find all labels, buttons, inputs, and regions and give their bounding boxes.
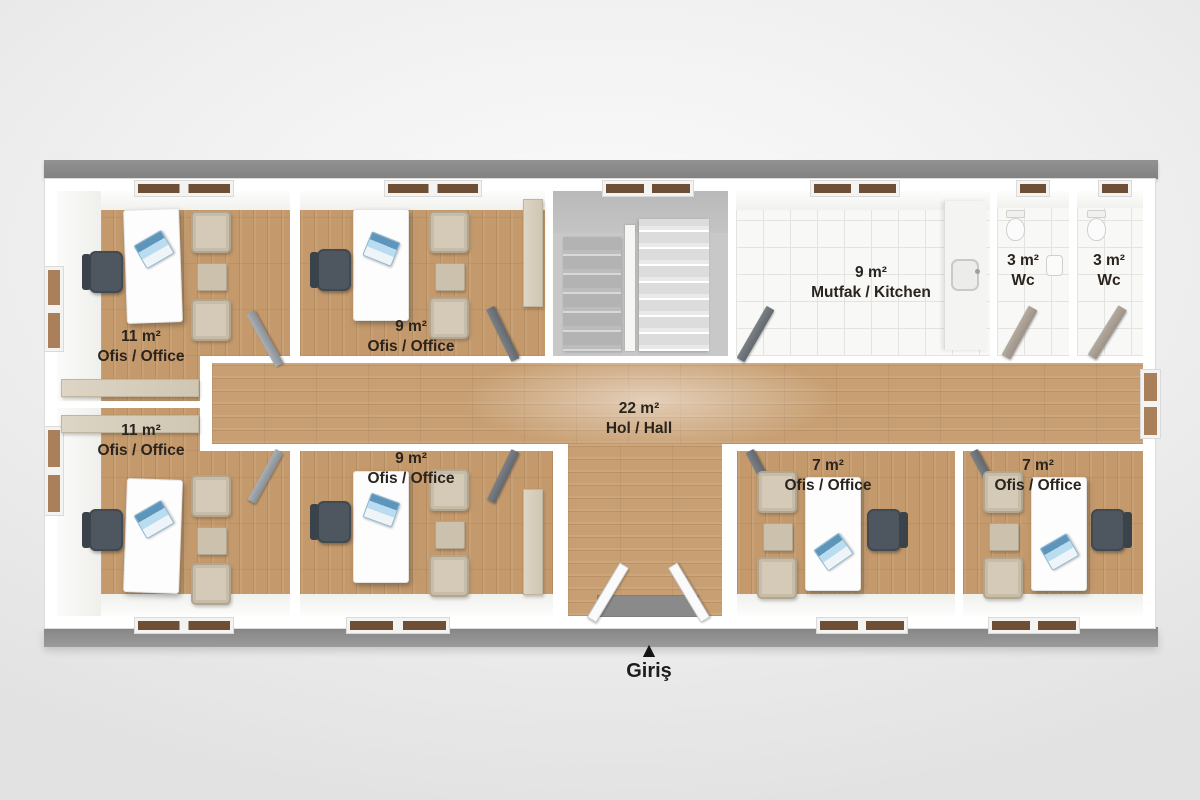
window [45,267,63,351]
guest-chair [191,211,231,253]
hall-floor [212,363,1143,444]
building-top-frame [44,160,1158,179]
room-label-office-bottom-right-1: 7 m² Ofis / Office [785,456,872,497]
room-name: Ofis / Office [785,476,872,496]
window [1099,181,1131,196]
cabinet [523,489,543,595]
guest-chair [983,557,1023,599]
room-area: 11 m² [98,327,185,347]
building-outline: 11 m² Ofis / Office 9 m² Ofis / Office 9… [45,179,1155,628]
room-name: Ofis / Office [98,347,185,367]
window [817,618,907,633]
wc-right-toilet-tank [1087,210,1106,218]
entrance-arrow-icon: ▲ [639,640,660,661]
hall-floor-highlight [212,363,1143,444]
wc-left-toilet-tank [1006,210,1025,218]
room-name: Mutfak / Kitchen [811,283,931,303]
room-area: 3 m² [1093,251,1125,271]
room-label-wc-right: 3 m² Wc [1093,251,1125,292]
room-area: 22 m² [606,399,672,419]
guest-chair [757,557,797,599]
room-area: 9 m² [811,263,931,283]
room-area: 7 m² [785,456,872,476]
room-name: Ofis / Office [98,441,185,461]
desk [123,208,183,324]
guest-chair [191,299,231,341]
office-chair [89,251,123,293]
window [347,618,449,633]
wallface [300,594,553,616]
guest-chair [191,563,231,605]
office-chair [89,509,123,551]
wc-left-toilet [1006,218,1025,241]
room-label-office-bottom-middle: 9 m² Ofis / Office [368,449,455,490]
entrance-mat [597,595,699,617]
room-name: Hol / Hall [606,419,672,439]
window [135,618,233,633]
coffee-table [197,263,227,291]
coffee-table [763,523,793,551]
window [811,181,899,196]
stair-flight-down [639,219,709,351]
cabinet [61,379,199,397]
room-label-office-top-left: 11 m² Ofis / Office [98,327,185,368]
room-area: 11 m² [98,421,185,441]
coffee-table [197,527,227,555]
entrance-vestibule-floor [568,444,722,616]
room-label-wc-left: 3 m² Wc [1007,251,1039,292]
room-area: 9 m² [368,317,455,337]
office-chair [867,509,901,551]
room-label-office-bottom-left: 11 m² Ofis / Office [98,421,185,462]
room-name: Wc [1007,271,1039,291]
kitchen-sink [951,259,979,291]
guest-chair [429,555,469,597]
coffee-table [435,521,465,549]
room-label-office-bottom-right-2: 7 m² Ofis / Office [995,456,1082,497]
desk [353,209,409,321]
window [603,181,693,196]
room-label-office-top-middle: 9 m² Ofis / Office [368,317,455,358]
room-area: 9 m² [368,449,455,469]
window [989,618,1079,633]
office-chair [317,249,351,291]
guest-chair [429,211,469,253]
room-area: 3 m² [1007,251,1039,271]
room-name: Ofis / Office [368,469,455,489]
coffee-table [435,263,465,291]
room-name: Ofis / Office [995,476,1082,496]
coffee-table [989,523,1019,551]
stair-flight-up [563,237,621,351]
entrance-label: Giriş [626,661,672,681]
hall-end-window [1141,370,1160,438]
room-label-kitchen: 9 m² Mutfak / Kitchen [811,263,931,304]
window [1017,181,1049,196]
window [135,181,233,196]
window [45,427,63,515]
office-chair [1091,509,1125,551]
guest-chair [191,475,231,517]
cabinet [523,199,543,307]
stair-divider-wall [625,225,635,351]
room-name: Ofis / Office [368,337,455,357]
wallface [57,191,101,401]
room-area: 7 m² [995,456,1082,476]
office-chair [317,501,351,543]
wc-right-toilet [1087,218,1106,241]
kitchen-faucet [975,269,980,274]
room-label-hall: 22 m² Hol / Hall [606,399,672,440]
window [385,181,481,196]
desk [123,478,183,594]
floor-plan-scene: 11 m² Ofis / Office 9 m² Ofis / Office 9… [0,0,1200,800]
wc-left-sink [1046,255,1063,276]
room-name: Wc [1093,271,1125,291]
